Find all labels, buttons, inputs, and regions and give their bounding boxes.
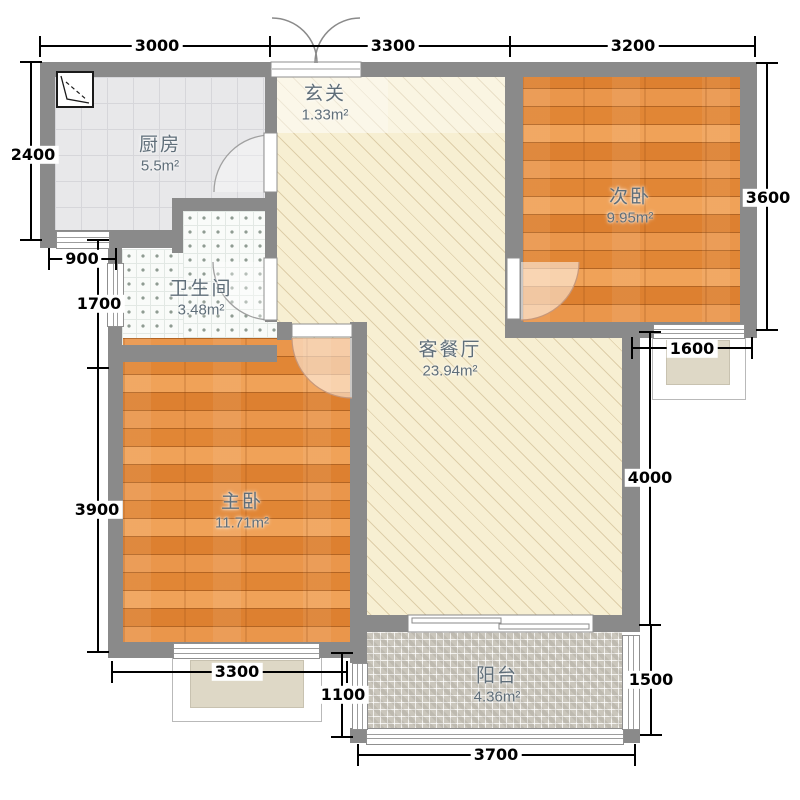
bedroom2-area: 9.95m² (607, 210, 654, 227)
balcony-area: 4.36m² (474, 689, 521, 706)
dim-left-2: 900 (62, 250, 101, 268)
living-area: 23.94m² (418, 363, 481, 380)
dim-bottom-2: 1100 (318, 686, 369, 704)
flue-icon (57, 72, 93, 107)
dim-bottom-1: 3300 (212, 663, 263, 681)
bedroom2-door (507, 258, 579, 320)
entry-area: 1.33m² (302, 107, 349, 124)
dim-right-2: 1600 (667, 340, 718, 358)
master-area: 11.71m² (215, 515, 269, 532)
plan-symbols-layer (0, 0, 800, 800)
master-label: 主卧 11.71m² (215, 487, 269, 532)
bedroom2-label: 次卧 9.95m² (607, 182, 654, 227)
kitchen-area: 5.5m² (139, 158, 181, 175)
balcony-name: 阳台 (474, 661, 521, 688)
entry-label: 玄关 1.33m² (302, 79, 349, 124)
dim-right-1: 3600 (743, 189, 794, 207)
kitchen-label: 厨房 5.5m² (139, 130, 181, 175)
entry-name: 玄关 (302, 79, 349, 106)
master-bedroom-door (292, 324, 352, 398)
master-name: 主卧 (215, 487, 269, 514)
dim-top-1: 3000 (132, 37, 183, 55)
dim-top-2: 3300 (368, 37, 419, 55)
bedroom2-name: 次卧 (607, 182, 654, 209)
dim-left-3: 1700 (74, 295, 125, 313)
dim-left-4: 3900 (72, 501, 123, 519)
dimension-lines (20, 36, 778, 766)
dim-bottom-3: 3700 (471, 746, 522, 764)
dim-right-3: 4000 (625, 469, 676, 487)
bathroom-label: 卫生间 3.48m² (169, 274, 232, 319)
bathroom-name: 卫生间 (169, 274, 232, 301)
living-label: 客餐厅 23.94m² (418, 335, 481, 380)
dim-right-4: 1500 (626, 671, 677, 689)
dim-left-1: 2400 (8, 146, 59, 164)
balcony-label: 阳台 4.36m² (474, 661, 521, 706)
dim-top-3: 3200 (608, 37, 659, 55)
kitchen-name: 厨房 (139, 130, 181, 157)
living-name: 客餐厅 (418, 335, 481, 362)
kitchen-door (214, 133, 277, 192)
bathroom-area: 3.48m² (169, 302, 232, 319)
floor-plan: 3000 3300 3200 2400 900 1700 3900 3600 1… (0, 0, 800, 800)
balcony-sliding-door (408, 615, 593, 632)
